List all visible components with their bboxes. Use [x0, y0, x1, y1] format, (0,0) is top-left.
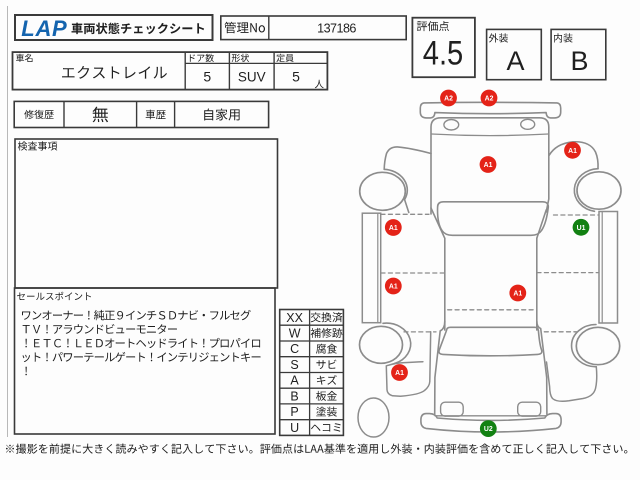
svg-text:A1: A1: [389, 284, 398, 291]
svg-text:B: B: [570, 46, 588, 76]
svg-text:5: 5: [203, 69, 211, 85]
svg-text:A2: A2: [444, 96, 453, 103]
svg-text:XX: XX: [286, 311, 303, 325]
svg-text:A1: A1: [484, 162, 493, 169]
svg-text:U: U: [290, 421, 299, 435]
svg-text:5: 5: [292, 69, 300, 85]
svg-text:P: P: [290, 405, 298, 419]
svg-text:4.5: 4.5: [423, 35, 464, 73]
svg-text:C: C: [290, 342, 299, 356]
svg-text:A1: A1: [568, 148, 577, 155]
svg-text:S: S: [290, 358, 298, 372]
svg-text:W: W: [289, 327, 301, 341]
svg-text:U1: U1: [577, 225, 586, 232]
svg-text:LAP: LAP: [21, 16, 67, 41]
svg-text:A2: A2: [485, 96, 494, 103]
svg-text:A: A: [290, 374, 299, 388]
svg-text:A1: A1: [395, 370, 404, 377]
svg-text:U2: U2: [484, 426, 493, 433]
svg-text:137186: 137186: [317, 22, 356, 36]
svg-text:A: A: [506, 46, 524, 76]
svg-text:A1: A1: [389, 225, 398, 232]
svg-text:A1: A1: [513, 291, 522, 298]
svg-text:SUV: SUV: [238, 70, 266, 85]
svg-text:B: B: [290, 390, 298, 404]
